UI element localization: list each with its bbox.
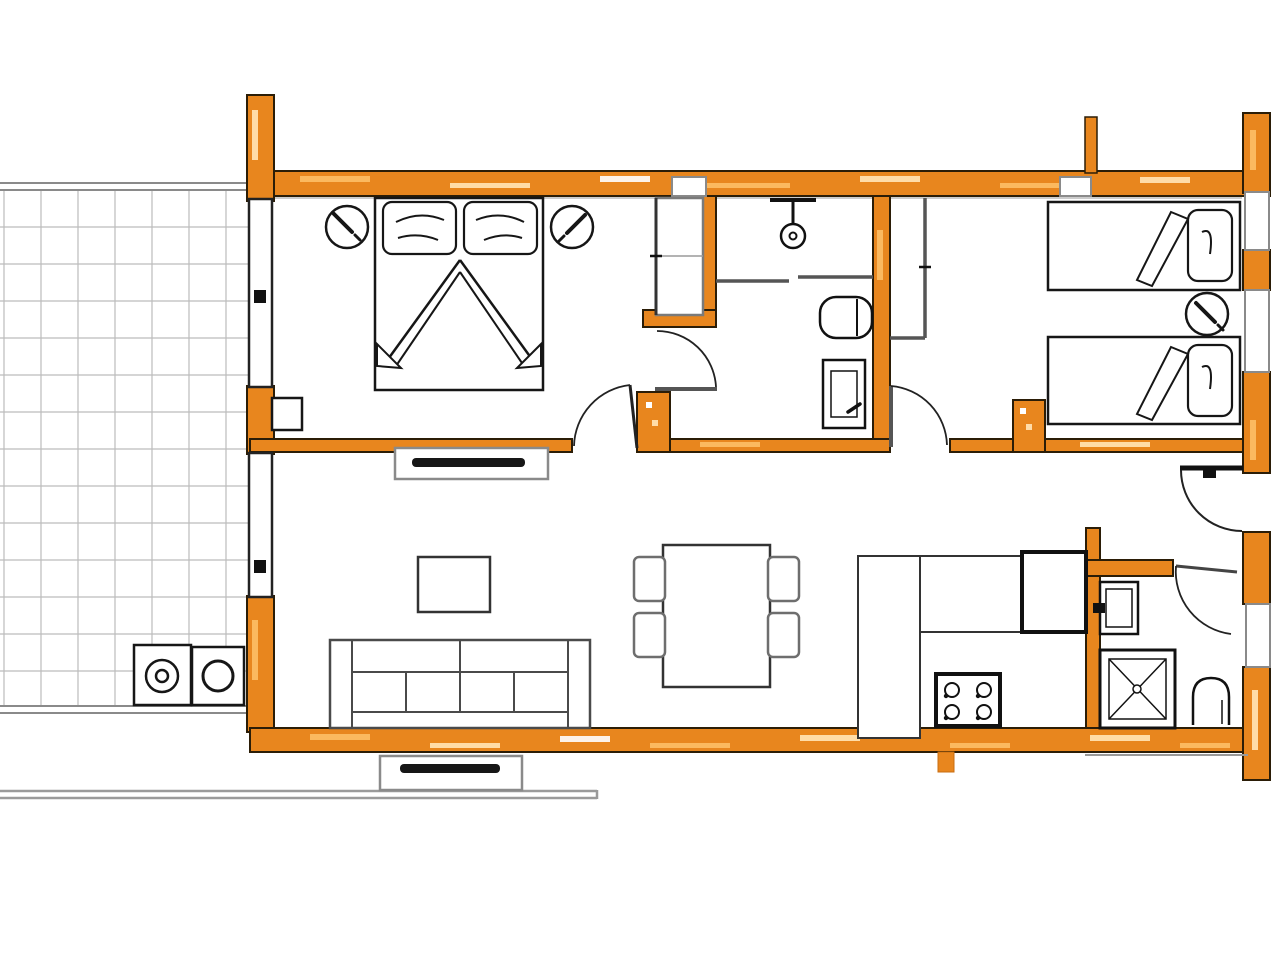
- bed-pillow-left: [383, 202, 456, 254]
- entry-door-hinge: [1203, 470, 1216, 478]
- wall-highlight: [800, 735, 860, 741]
- window-right-3: [1246, 604, 1270, 667]
- kitchen-furniture: [858, 552, 1086, 738]
- stove-burner-dot: [976, 716, 980, 720]
- ensuite-bathroom-fixtures: [770, 200, 872, 428]
- wall-highlight: [877, 230, 883, 280]
- wall-highlight: [650, 743, 730, 748]
- left-wall-lower: [247, 596, 274, 732]
- bath2-west-wall: [1086, 528, 1100, 728]
- dining-chair: [768, 557, 799, 601]
- wall-highlight: [600, 176, 650, 182]
- window-right-2: [1245, 290, 1269, 372]
- wall-highlight: [1026, 424, 1032, 430]
- sofa-cushion: [460, 672, 514, 712]
- outdoor-bench-bar: [400, 764, 500, 773]
- ensuite-door-arc: [657, 331, 716, 387]
- window-right-1: [1245, 192, 1269, 250]
- wall-highlight: [1080, 442, 1150, 447]
- master-bedroom-door-leaf: [630, 385, 637, 448]
- shower-drain: [1133, 685, 1141, 693]
- dining-chair: [634, 557, 665, 601]
- sink-2-faucet: [1093, 603, 1105, 613]
- bath-west-wall: [703, 196, 716, 323]
- glass-door-left-2: [249, 453, 272, 597]
- wall-highlight: [430, 743, 500, 748]
- toilet-1: [820, 297, 872, 338]
- kitchen-counter-top: [920, 556, 1022, 632]
- wall-highlight: [950, 743, 1010, 748]
- dining-chair: [634, 613, 665, 657]
- window-top-1: [672, 177, 706, 196]
- wall-highlight: [652, 420, 658, 426]
- wall-highlight: [300, 176, 370, 182]
- wall-cabinet: [272, 398, 302, 430]
- wall-highlight: [310, 734, 370, 740]
- floor-plan-page: [0, 0, 1280, 960]
- right-wall-seg-4: [1243, 532, 1270, 604]
- shower-head: [781, 224, 805, 248]
- outdoor-grill-unit: [134, 645, 191, 705]
- wall-highlight: [560, 736, 610, 742]
- right-wall-seg-3: [1243, 372, 1270, 473]
- interior-wall-bath-south: [637, 439, 890, 452]
- stove-burner-dot: [944, 716, 948, 720]
- wall-highlight: [450, 183, 530, 188]
- fridge-cabinet: [1022, 552, 1086, 632]
- stove-burner-dot: [944, 694, 948, 698]
- left-wall-top-post: [247, 95, 274, 201]
- entry-door-arc: [1181, 470, 1242, 531]
- stove-burner-dot: [976, 694, 980, 698]
- wall-highlight: [1140, 177, 1190, 183]
- bed-pillow-right: [464, 202, 537, 254]
- bottom-wall-tick: [938, 752, 954, 772]
- dining-furniture: [634, 545, 799, 687]
- toilet-2: [1193, 678, 1229, 725]
- twin-bedroom-door-arc: [891, 386, 947, 445]
- twin-bedroom-furniture: [1048, 202, 1240, 424]
- glass-door-handle-2: [254, 560, 266, 573]
- wall-highlight: [1020, 408, 1026, 414]
- dining-table: [663, 545, 770, 687]
- sofa-cushion: [406, 672, 460, 712]
- sink-2-basin: [1106, 589, 1132, 627]
- wall-highlight: [1252, 690, 1258, 750]
- coffee-table: [418, 557, 490, 612]
- sofa-cushion: [514, 672, 568, 712]
- wall-highlight: [1250, 420, 1256, 460]
- glass-door-handle-1: [254, 290, 266, 303]
- wall-highlight: [860, 176, 920, 182]
- tv-sideboard-bar: [412, 458, 525, 467]
- bathroom2-door-leaf: [1176, 566, 1237, 572]
- kitchen-counter-vertical: [858, 556, 920, 738]
- wall-highlight: [252, 620, 258, 680]
- right-wall-seg-2: [1243, 250, 1270, 290]
- wall-highlight: [252, 110, 258, 160]
- bath2-north-wall: [1086, 560, 1173, 576]
- right-wall-seg-1: [1243, 113, 1270, 193]
- bathroom2-door-arc: [1176, 566, 1231, 634]
- chimney-post: [1085, 117, 1097, 173]
- wall-highlight: [646, 402, 652, 408]
- interior-wall-hall: [950, 439, 1013, 452]
- wall-highlight: [700, 183, 790, 188]
- second-bathroom-fixtures: [1093, 582, 1229, 728]
- master-bedroom-furniture: [272, 198, 593, 430]
- dining-chair: [768, 613, 799, 657]
- sofa-cushion: [352, 672, 406, 712]
- wall-highlight: [700, 442, 760, 447]
- window-top-2: [1060, 177, 1091, 196]
- outdoor-burner-unit: [192, 647, 244, 705]
- wall-highlight: [1250, 130, 1256, 170]
- wall-highlight: [1180, 743, 1230, 748]
- wall-highlight: [1090, 735, 1150, 741]
- floor-plan-drawing: [0, 0, 1280, 960]
- master-bedroom-door-arc: [574, 385, 630, 446]
